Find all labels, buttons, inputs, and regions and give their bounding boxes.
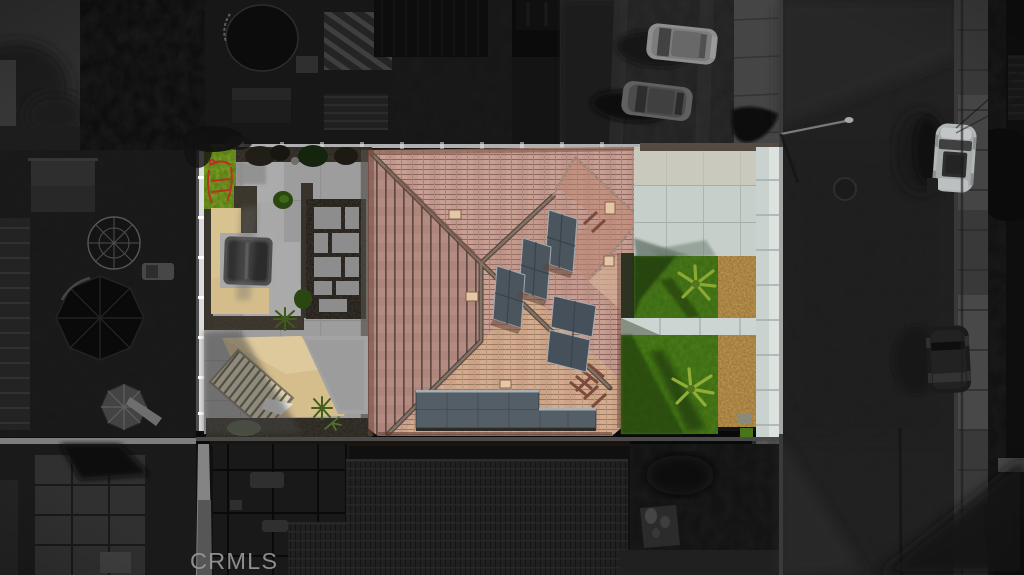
svg-text:CRMLS: CRMLS [190,548,278,574]
